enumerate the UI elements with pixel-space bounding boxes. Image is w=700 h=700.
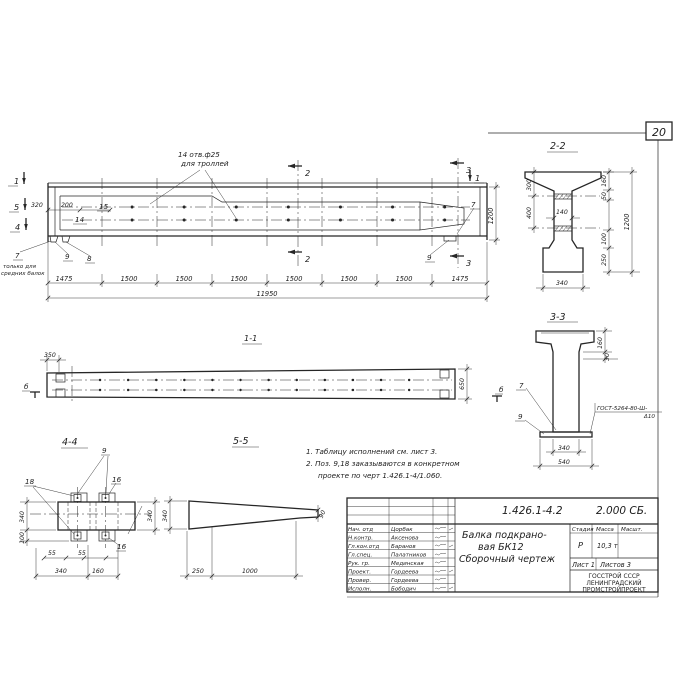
svg-text:Нач. отд: Нач. отд <box>348 527 373 533</box>
svg-text:Палатников: Палатников <box>391 553 426 559</box>
svg-text:1500: 1500 <box>231 275 248 283</box>
poz-7-right: 7 <box>471 200 476 209</box>
poz-16-top: 16 <box>112 475 122 484</box>
stage-label: Стадия <box>572 527 594 533</box>
svg-text:Мединская: Мединская <box>391 561 424 567</box>
svg-text:340: 340 <box>147 510 154 522</box>
svg-text:проекте по черт 1.426.1-4/1.06: проекте по черт 1.426.1-4/1.060. <box>318 471 442 480</box>
svg-text:1500: 1500 <box>286 275 303 283</box>
svg-text:Сборочный чертеж: Сборочный чертеж <box>459 554 556 565</box>
doc-code: 2.000 СБ. <box>596 505 647 517</box>
svg-text:вая БК12: вая БК12 <box>478 542 524 553</box>
poz-7-left: 7 <box>15 251 20 260</box>
scale-label: Масшт. <box>621 527 643 533</box>
mark-b-right: б <box>499 385 504 394</box>
section-3-3-title: 3-3 <box>550 312 566 323</box>
section-1-1-view <box>22 344 503 404</box>
mark-4-left: 4 <box>15 222 20 232</box>
mass-value: 10,3 т <box>597 542 618 550</box>
svg-text:90: 90 <box>318 509 328 519</box>
section-5-5-view <box>164 447 320 580</box>
svg-text:1475: 1475 <box>452 275 469 283</box>
svg-text:для троллей: для троллей <box>180 159 229 168</box>
section-3-3-view <box>515 322 662 470</box>
svg-text:средних балок: средних балок <box>1 271 45 277</box>
svg-text:1475: 1475 <box>56 275 73 283</box>
poz-9-left: 9 <box>65 252 70 261</box>
svg-text:300: 300 <box>526 179 533 191</box>
svg-text:400: 400 <box>526 207 533 219</box>
sheets-info: Листов 3 <box>599 561 631 569</box>
poz-7: 7 <box>519 381 524 390</box>
org-name: ГОССТРОЙ СССР <box>588 573 640 580</box>
section-2-2-labels: 2-2 300 400 140 160 50 100 250 1200 340 <box>526 141 631 287</box>
svg-text:100: 100 <box>601 233 608 245</box>
mass-label: Масса <box>596 527 614 533</box>
svg-text:340: 340 <box>19 511 26 523</box>
drawing-notes: 1. Таблицу исполнений см. лист 3. 2. Поз… <box>306 447 460 480</box>
dim-320: 320 <box>31 202 43 209</box>
svg-text:Бободич: Бободич <box>391 587 417 593</box>
svg-text:250: 250 <box>601 254 608 266</box>
svg-text:1500: 1500 <box>176 275 193 283</box>
svg-text:1200: 1200 <box>623 214 631 231</box>
middle-beams-note: только для <box>3 264 37 270</box>
section-3-3-labels: 3-3 160 30 340 540 7 9 ГОСТ-5264-80-Ш- Δ… <box>518 312 655 466</box>
mark-b-left: б <box>24 382 29 391</box>
svg-text:160: 160 <box>597 337 604 349</box>
svg-text:1500: 1500 <box>396 275 413 283</box>
section-2-2-title: 2-2 <box>550 141 566 152</box>
svg-text:1000: 1000 <box>242 568 258 575</box>
svg-text:340: 340 <box>558 445 570 452</box>
svg-text:Δ10: Δ10 <box>643 414 655 420</box>
svg-text:ПРОМСТРОЙПРОЕКТ: ПРОМСТРОЙПРОЕКТ <box>582 587 646 594</box>
section-4-4-view <box>20 448 160 580</box>
dim-200: 200 <box>61 202 73 209</box>
sheet-info: Лист 1 <box>571 561 595 569</box>
svg-text:Аксенова: Аксенова <box>390 536 419 542</box>
svg-text:55: 55 <box>48 550 56 557</box>
sheet-number: 20 <box>652 126 666 139</box>
poz-9: 9 <box>518 412 523 421</box>
svg-text:Цорбак: Цорбак <box>391 527 413 533</box>
section-1-1-title: 1-1 <box>244 333 257 343</box>
svg-text:55: 55 <box>78 550 86 557</box>
weld-gost-note: ГОСТ-5264-80-Ш- <box>597 406 647 412</box>
poz-9-right: 9 <box>427 253 432 262</box>
mark-5-left: 5 <box>14 202 19 212</box>
poz-16-bottom: 16 <box>117 542 127 551</box>
poz-14: 14 <box>75 215 85 224</box>
dim-height-1200: 1200 <box>487 208 495 225</box>
main-beam-view <box>8 158 500 302</box>
svg-text:Н.контр.: Н.контр. <box>348 536 373 542</box>
svg-text:1500: 1500 <box>341 275 358 283</box>
trolley-holes-callout: 14 отв.ф25 <box>178 150 220 159</box>
svg-text:340: 340 <box>556 280 568 287</box>
section-5-5-title: 5-5 <box>233 436 249 447</box>
title-block-text: 1.426.1-4.2 2.000 СБ. Балка подкрано- ва… <box>348 505 647 594</box>
dim-350: 350 <box>44 352 56 359</box>
svg-text:Гл.спец.: Гл.спец. <box>348 553 372 559</box>
mark-3-bottom: 3 <box>466 258 471 268</box>
note-1: 1. Таблицу исполнений см. лист 3. <box>306 447 437 456</box>
sheet-frame <box>347 122 672 597</box>
svg-text:340: 340 <box>162 510 169 522</box>
svg-text:30: 30 <box>604 353 611 361</box>
svg-text:Гордеева: Гордеева <box>391 570 419 576</box>
drawing-sheet: 20 <box>0 0 700 700</box>
svg-text:160: 160 <box>601 175 608 187</box>
svg-text:540: 540 <box>558 459 570 466</box>
svg-text:50: 50 <box>601 192 608 200</box>
svg-text:Гл.кон.отд: Гл.кон.отд <box>348 544 379 550</box>
svg-text:Провер.: Провер. <box>348 578 371 584</box>
dim-650: 650 <box>459 378 466 390</box>
svg-text:250: 250 <box>192 568 204 575</box>
mark-3-top: 3 <box>466 165 471 175</box>
section-4-4-labels: 4-4 18 9 16 16 55 55 340 160 340 100 340 <box>19 437 154 575</box>
svg-text:Рук. гр.: Рук. гр. <box>348 561 370 567</box>
svg-text:Баранов: Баранов <box>391 544 416 550</box>
poz-8: 8 <box>87 254 92 263</box>
mark-2-top: 2 <box>305 168 310 178</box>
svg-text:Гордеева: Гордеева <box>391 578 419 584</box>
poz-18: 18 <box>25 477 35 486</box>
note-2: 2. Поз. 9,18 заказываются в конкретном <box>306 459 460 468</box>
svg-text:160: 160 <box>92 568 104 575</box>
mark-2-bottom: 2 <box>305 254 310 264</box>
section-1-1-labels: 1-1 350 650 б б <box>24 333 504 394</box>
svg-text:100: 100 <box>19 532 26 544</box>
stage-value: Р <box>578 540 583 550</box>
poz-15: 15 <box>99 202 109 211</box>
drawing-title: Балка подкрано- <box>462 530 547 541</box>
svg-text:140: 140 <box>556 209 568 216</box>
doc-number: 1.426.1-4.2 <box>502 505 563 517</box>
svg-text:Исполн.: Исполн. <box>348 587 372 593</box>
svg-text:1500: 1500 <box>121 275 138 283</box>
mark-1-right: 1 <box>475 173 480 183</box>
svg-text:340: 340 <box>55 568 67 575</box>
mark-1-left: 1 <box>14 176 19 186</box>
svg-text:Проект.: Проект. <box>348 570 371 576</box>
poz-9: 9 <box>102 446 107 455</box>
dim-total-11950: 11950 <box>257 290 278 298</box>
section-4-4-title: 4-4 <box>62 437 78 448</box>
